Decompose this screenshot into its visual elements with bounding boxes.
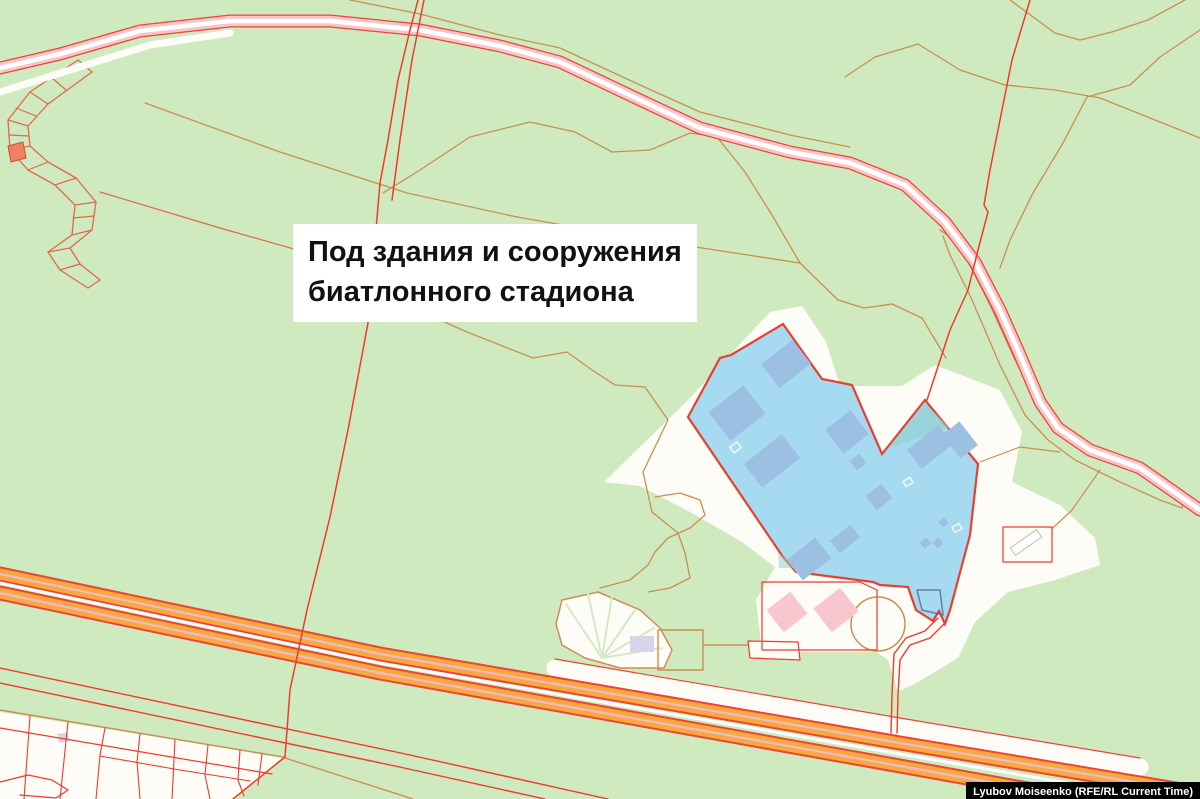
parcel-rect-near-fan [658, 630, 762, 670]
lavender-building-fan [630, 636, 654, 652]
annotation-line1: Под здания и сооружения [308, 232, 682, 272]
annotation-line2: биатлонного стадиона [308, 272, 682, 312]
parcel-pink-filled [8, 142, 26, 162]
contour-right-diagonal [1000, 30, 1200, 268]
contour-topright-upper [1010, 0, 1185, 40]
map-screenshot: Под здания и сооружения биатлонного стад… [0, 0, 1200, 799]
contour-town-extension [285, 758, 413, 799]
credit-bar: Lyubov Moiseenko (RFE/RL Current Time) [966, 782, 1200, 799]
annotation-box: Под здания и сооружения биатлонного стад… [293, 224, 697, 322]
map-canvas [0, 0, 1200, 799]
parcel-cluster-outer [8, 60, 88, 288]
contour-topright-meander [845, 44, 1200, 138]
parcel-cluster-crossbars [8, 60, 100, 288]
contour-road-upper [350, 0, 850, 147]
credit-text: Lyubov Moiseenko (RFE/RL Current Time) [973, 786, 1193, 798]
